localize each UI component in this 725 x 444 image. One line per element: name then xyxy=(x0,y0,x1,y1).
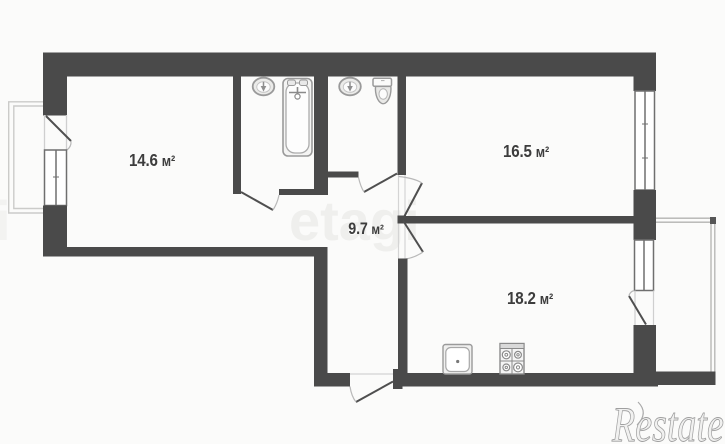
svg-text:9.7 м²: 9.7 м² xyxy=(348,220,384,238)
svg-text:16.5 м²: 16.5 м² xyxy=(503,141,549,162)
svg-text:14.6 м²: 14.6 м² xyxy=(129,150,175,171)
svg-text:18.2 м²: 18.2 м² xyxy=(507,288,553,309)
svg-text:Restate: Restate xyxy=(611,396,724,444)
